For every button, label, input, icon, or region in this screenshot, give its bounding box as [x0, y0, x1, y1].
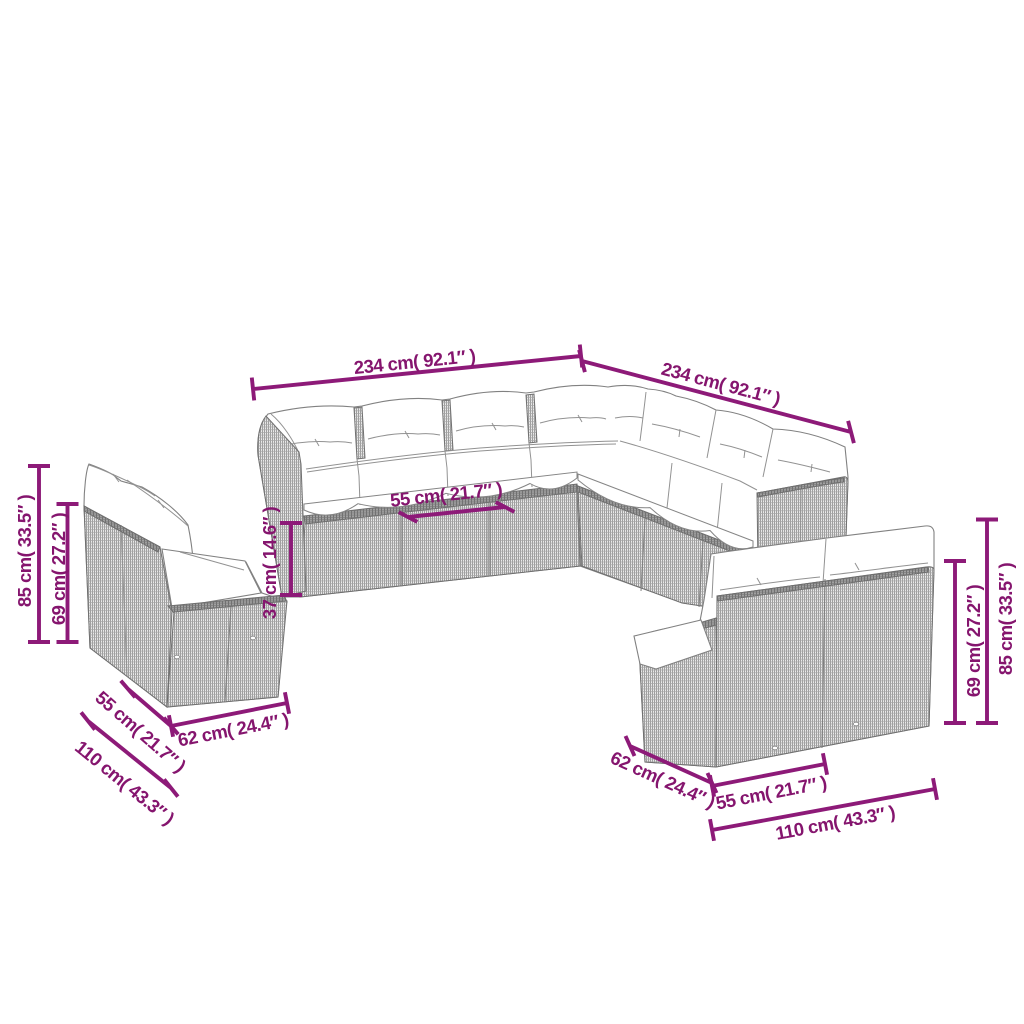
svg-text:85 cm( 33.5″ ): 85 cm( 33.5″ ): [995, 563, 1016, 676]
svg-text:69 cm( 27.2″ ): 69 cm( 27.2″ ): [48, 513, 69, 626]
svg-text:69 cm( 27.2″ ): 69 cm( 27.2″ ): [963, 585, 984, 698]
svg-text:85 cm( 33.5″ ): 85 cm( 33.5″ ): [14, 495, 35, 608]
svg-text:37 cm( 14.6″ ): 37 cm( 14.6″ ): [259, 507, 280, 620]
